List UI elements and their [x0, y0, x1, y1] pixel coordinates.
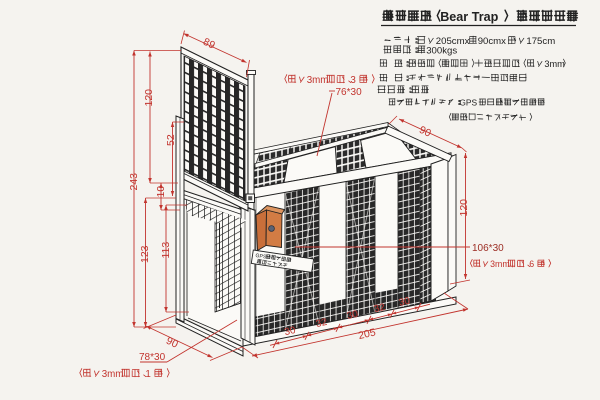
svg-text:1: 1 [145, 369, 150, 380]
svg-text:113: 113 [160, 242, 172, 259]
svg-text:120: 120 [458, 199, 470, 217]
svg-text:3mm: 3mm [102, 369, 124, 380]
svg-text:3mm: 3mm [490, 259, 510, 269]
svg-text:90cmx: 90cmx [478, 36, 506, 47]
svg-text:52: 52 [165, 134, 177, 146]
svg-text:123: 123 [139, 245, 151, 263]
svg-text:76*30: 76*30 [336, 87, 363, 98]
svg-text:106*30: 106*30 [472, 243, 504, 254]
svg-text:10: 10 [155, 186, 167, 198]
svg-text:3mm: 3mm [544, 59, 565, 69]
svg-text:300kgs: 300kgs [426, 46, 457, 57]
svg-text:6: 6 [529, 259, 534, 269]
svg-text:175cm: 175cm [526, 36, 555, 47]
svg-text:3mm: 3mm [307, 75, 329, 86]
svg-text:120: 120 [143, 89, 155, 107]
svg-text:Bear Trap: Bear Trap [440, 10, 498, 24]
svg-text:3: 3 [350, 75, 356, 86]
svg-text:GPS: GPS [459, 98, 477, 108]
svg-text:243: 243 [128, 173, 140, 191]
svg-text:78*30: 78*30 [139, 352, 166, 363]
